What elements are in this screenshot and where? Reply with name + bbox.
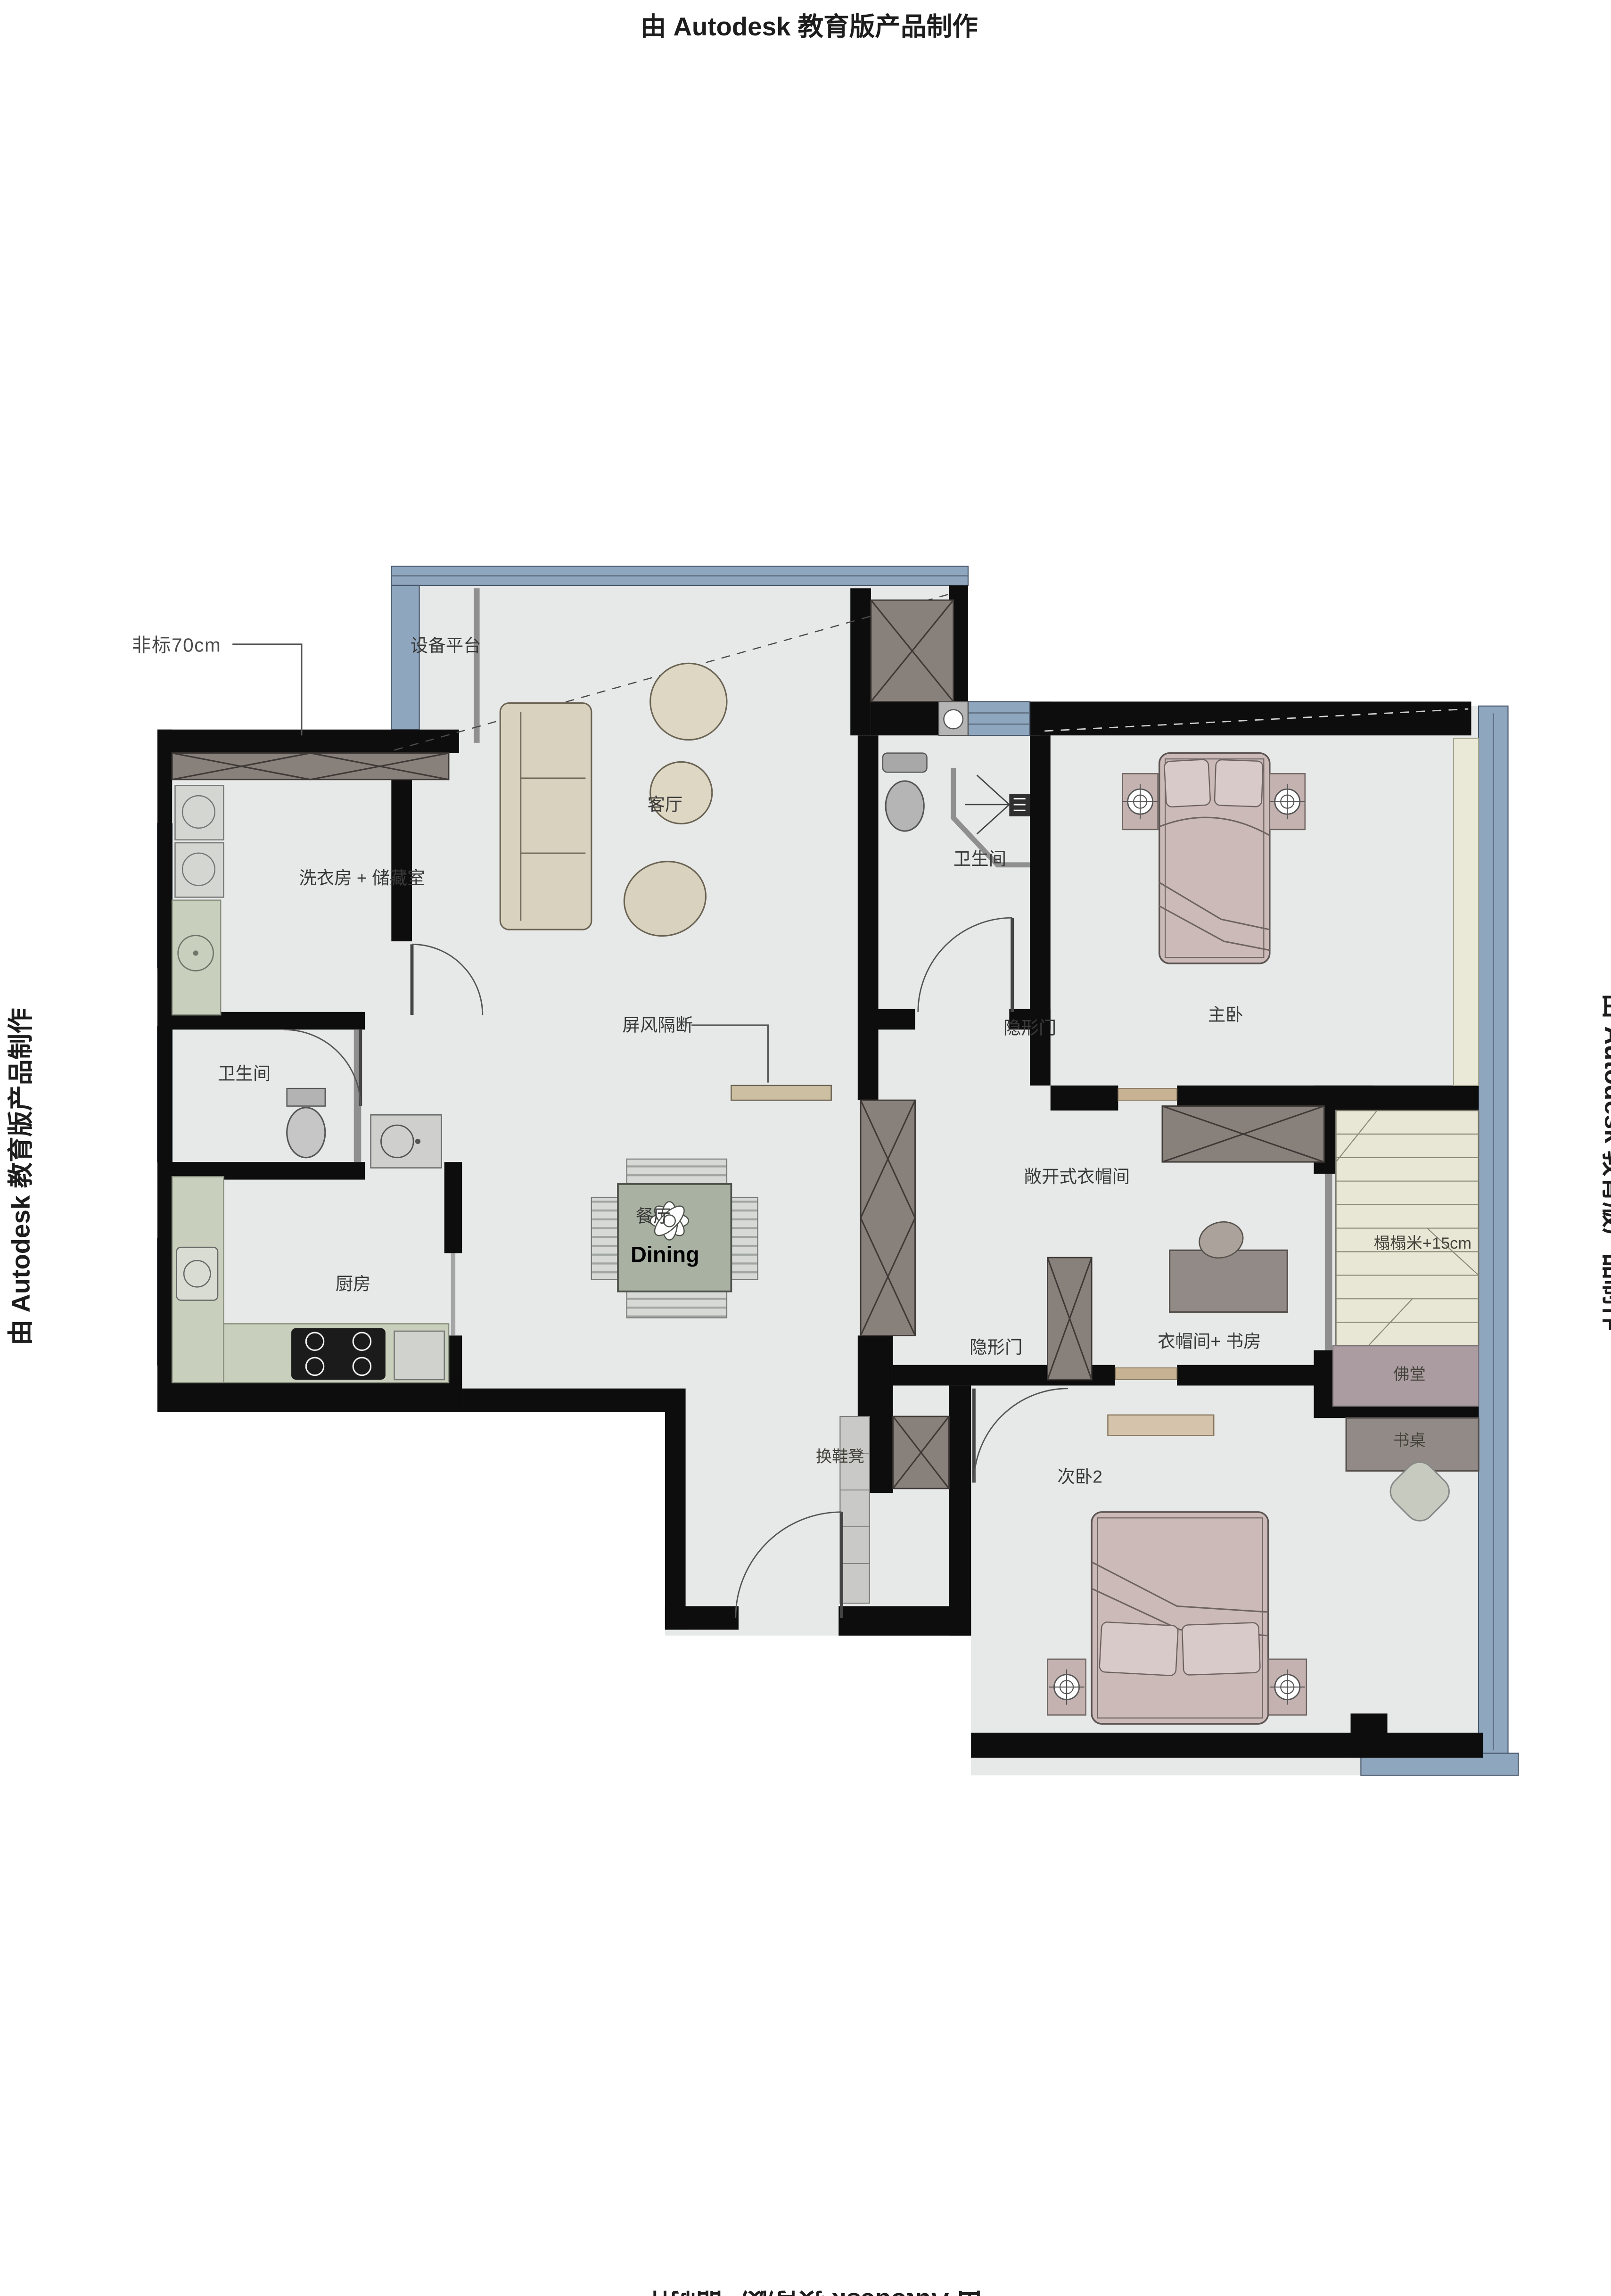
round-table-small [650,762,712,823]
laundry-top-cabinet [172,753,449,780]
laundry-room-furniture [172,785,223,1015]
label-kitchen: 厨房 [336,1274,371,1294]
study-mid-cabinet [1047,1258,1092,1380]
bedroom2-pillow-left [1099,1622,1178,1676]
label-bedroom2: 次卧2 [1057,1466,1102,1486]
entry-wardrobe [893,1416,949,1489]
label-bathroom-left: 卫生间 [218,1063,271,1083]
label-living-room: 客厅 [647,794,682,814]
bedroom2-dresser [1108,1415,1214,1436]
tatami-room [1333,1111,1479,1406]
stove [291,1328,386,1380]
toilet-bowl-left [287,1108,325,1158]
round-table-large [650,663,727,740]
label-equipment-platform: 设备平台 [411,635,481,655]
shoe-bench [840,1416,869,1603]
dining-chairs-bottom [627,1292,727,1318]
label-dining-en: Dining [631,1242,699,1267]
kitchen-sink [177,1247,218,1300]
label-laundry-storage: 洗衣房 + 储藏室 [299,868,425,888]
dining-table [618,1184,731,1292]
dining-chairs-top [627,1159,727,1184]
entry-furniture [840,1416,869,1603]
master-door-threshold [1118,1088,1177,1100]
sofa [500,703,592,930]
label-buddha-hall: 佛堂 [1393,1366,1426,1383]
label-70cm: 非标70cm [132,634,222,656]
label-cloakroom-study: 衣帽间+ 书房 [1158,1331,1261,1351]
label-desk: 书桌 [1393,1432,1426,1449]
bedroom2-bed [1092,1512,1268,1724]
master-pillow-left [1164,759,1211,807]
leader-70cm [232,644,302,735]
watermark-right: 由 Autodesk 教育版产品制作 [1600,993,1611,1331]
toilet-bowl-top [886,781,924,831]
label-tatami: 榻榻米+15cm [1374,1234,1471,1252]
label-dining-cn: 餐厅 [635,1206,671,1226]
cloakroom-top-cabinet [1162,1106,1324,1162]
window-bath-top [967,701,1030,735]
cloakroom-left-cabinet [861,1100,915,1335]
watermark-bottom: 由 Autodesk 教育版产品制作 [645,2288,982,2296]
watermark-top: 由 Autodesk 教育版产品制作 [641,12,978,41]
dining-chairs-right [731,1197,757,1280]
label-screen-partition: 屏风隔断 [622,1015,693,1035]
study-door-threshold [1115,1368,1177,1380]
screen-partition [731,1086,831,1100]
watermark-left: 由 Autodesk 教育版产品制作 [6,1008,35,1345]
bedroom2-pillow-right [1182,1622,1260,1675]
label-bathroom-top: 卫生间 [953,849,1006,869]
label-hidden-door-top: 隐形门 [1003,1018,1056,1038]
study-desk [1170,1250,1288,1312]
label-open-cloakroom: 敞开式衣帽间 [1024,1167,1130,1186]
label-hidden-door-bottom: 隐形门 [970,1337,1022,1357]
entry-shoe-cabinet-top [871,600,953,701]
label-shoe-bench: 换鞋凳 [816,1448,864,1466]
floorplan-canvas: 设备平台 客厅 洗衣房 + 储藏室 卫生间 隐形门 主卧 屏风隔断 敞开式衣帽间… [0,0,1611,2296]
window-band-left-top [391,585,419,730]
master-pillow-right [1215,760,1263,807]
label-master-bedroom: 主卧 [1208,1005,1243,1025]
dining-chair-left [592,1197,618,1280]
toilet-tank-top [883,753,927,773]
fridge [395,1331,444,1380]
master-curtain [1454,738,1479,1085]
toilet-tank-left [287,1088,325,1106]
